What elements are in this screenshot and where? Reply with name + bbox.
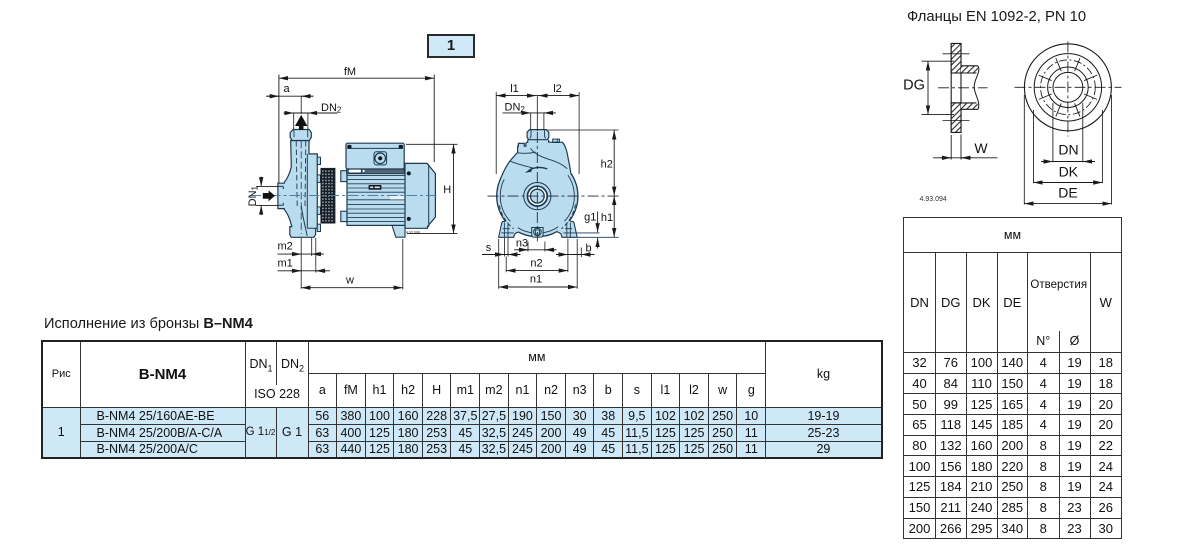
svg-text:fM: fM bbox=[344, 66, 356, 78]
svg-text:l2: l2 bbox=[553, 83, 562, 95]
svg-text:m2: m2 bbox=[278, 241, 293, 253]
svg-text:g1: g1 bbox=[584, 212, 596, 224]
svg-text:DK: DK bbox=[1059, 164, 1079, 180]
svg-text:DN: DN bbox=[1058, 142, 1078, 158]
svg-text:n2: n2 bbox=[530, 257, 542, 269]
svg-text:W: W bbox=[974, 140, 988, 156]
svg-text:DN2: DN2 bbox=[321, 102, 342, 115]
svg-text:DN2: DN2 bbox=[505, 102, 526, 115]
svg-text:a: a bbox=[283, 83, 290, 95]
svg-text:h2: h2 bbox=[601, 158, 613, 170]
svg-text:DE: DE bbox=[1058, 185, 1077, 201]
svg-text:n1: n1 bbox=[530, 274, 542, 286]
svg-text:n3: n3 bbox=[516, 237, 528, 249]
svg-text:4.93.094: 4.93.094 bbox=[920, 196, 947, 203]
svg-text:w: w bbox=[345, 274, 354, 286]
svg-text:m1: m1 bbox=[278, 257, 293, 269]
svg-text:b: b bbox=[585, 242, 591, 254]
svg-text:H: H bbox=[443, 184, 451, 196]
svg-text:DG: DG bbox=[903, 78, 925, 94]
svg-text:s: s bbox=[486, 242, 492, 254]
svg-text:l1: l1 bbox=[510, 83, 519, 95]
svg-text:DN1: DN1 bbox=[247, 185, 260, 206]
svg-text:h1: h1 bbox=[601, 212, 613, 224]
